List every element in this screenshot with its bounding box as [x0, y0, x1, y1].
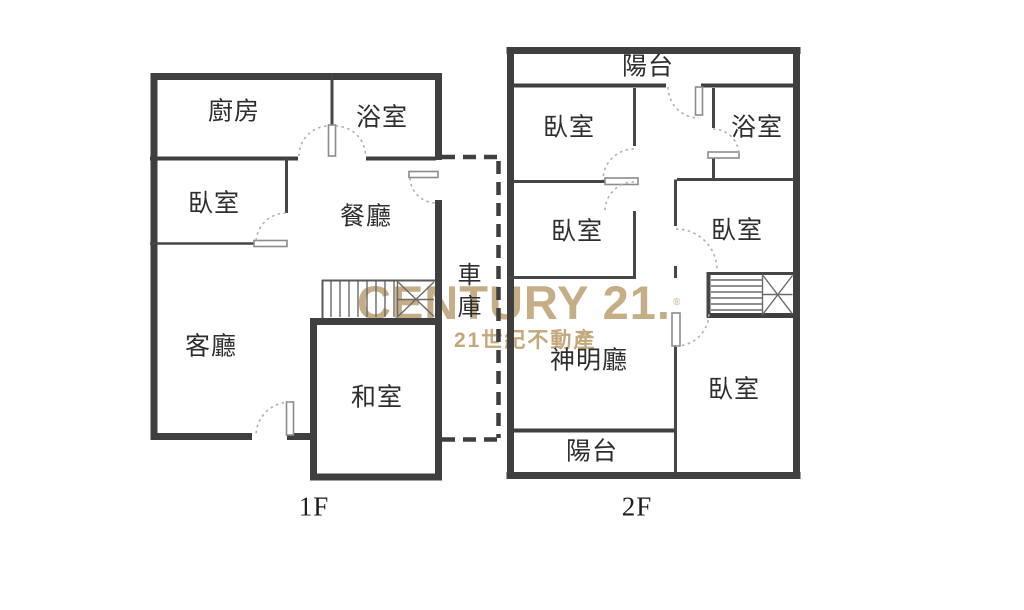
garage-door-leaf-1f: [409, 172, 438, 178]
floor1-stairs: [322, 280, 435, 318]
room-label-garage-1f: 車庫: [454, 262, 478, 326]
room-label-bath-1f: 浴室: [356, 106, 408, 131]
floor2-outer-walls: [507, 47, 801, 479]
bedroom-door-arc-1f: [256, 213, 286, 243]
floor1-plan: [150, 73, 501, 481]
front-door-leaf-1f: [287, 402, 294, 435]
room-label-bath-2f: 浴室: [731, 116, 783, 141]
room-label-bedroom-c-2f: 臥室: [711, 219, 763, 244]
room-label-kitchen-1f: 廚房: [208, 100, 260, 125]
room-label-balcony-top-2f: 陽台: [622, 55, 674, 80]
room-label-balcony-bottom-2f: 陽台: [566, 440, 618, 465]
bedroom-door-leaf-1f: [254, 241, 287, 247]
floor2-door-leaves: [605, 87, 739, 346]
kitchen-bath-door-leaf: [329, 125, 336, 156]
room-label-tatami-1f: 和室: [351, 386, 403, 411]
room-label-bedroom-a-2f: 臥室: [543, 116, 595, 141]
kitchen-door-arc: [299, 126, 329, 156]
room-label-living-1f: 客廳: [185, 335, 237, 360]
bath-door-leaf-2f: [708, 152, 739, 158]
floor2-stairs: [707, 272, 793, 318]
floor-caption-1f: 1F: [299, 492, 330, 523]
bedroom-b-door-arc-2f: [605, 182, 634, 211]
floor-plan-drawing: [0, 0, 1024, 610]
bedroom-d-door-arc-2f: [676, 313, 709, 346]
room-label-bedroom-d-2f: 臥室: [708, 378, 760, 403]
garage-door-arc-1f: [410, 178, 436, 203]
floor-caption-2f: 2F: [622, 492, 653, 523]
bedroom-d-door-leaf-2f: [672, 313, 680, 346]
room-label-bedroom-1f: 臥室: [188, 192, 240, 217]
room-label-bedroom-b-2f: 臥室: [551, 220, 603, 245]
front-door-arc-1f: [256, 402, 290, 436]
floor2-plan: [507, 47, 801, 479]
floor-plan-page: CENTURY 21.® 21世紀不動產: [0, 0, 1024, 610]
floor2-stairs-direction-cross: [763, 276, 793, 315]
floor2-door-arcs: [603, 87, 739, 346]
floor1-thin-walls: [287, 73, 333, 213]
floor1-outer-walls: [151, 73, 443, 481]
floor1-stairs-direction-cross: [398, 282, 434, 317]
room-label-shrine-2f: 神明廳: [550, 349, 628, 374]
room-label-dining-1f: 餐廳: [340, 205, 392, 230]
bedroom-a-door-arc-2f: [603, 149, 634, 180]
balcony-door-arc-2f: [668, 87, 699, 118]
floor2-stairs-treads: [711, 275, 763, 315]
floor1-stairs-treads: [331, 281, 398, 318]
balcony-door-leaf-2f: [696, 87, 703, 115]
